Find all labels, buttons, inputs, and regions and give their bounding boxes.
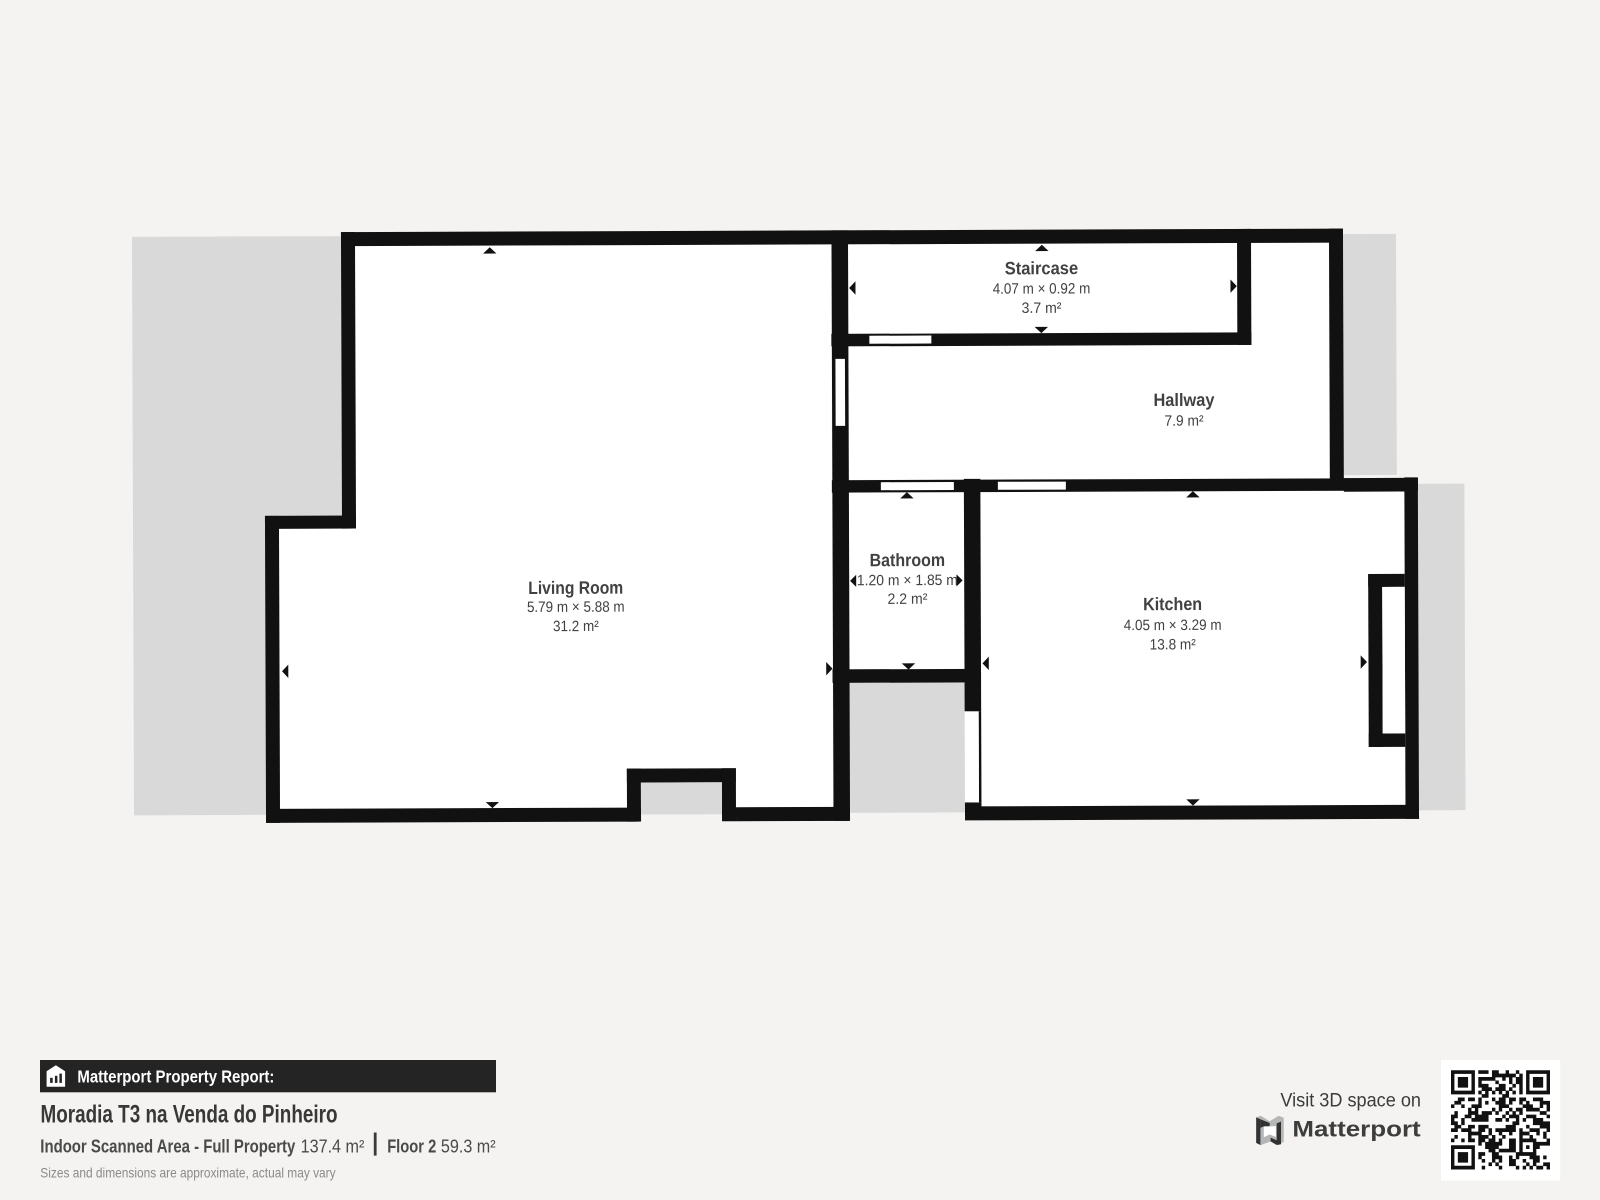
svg-text:Bathroom: Bathroom	[870, 550, 946, 570]
svg-text:2.2 m²: 2.2 m²	[887, 591, 927, 608]
svg-text:Living Room: Living Room	[528, 578, 623, 598]
svg-text:Staircase: Staircase	[1005, 258, 1078, 278]
svg-text:7.9 m²: 7.9 m²	[1165, 413, 1204, 430]
svg-text:Kitchen: Kitchen	[1143, 594, 1202, 614]
svg-text:4.07 m × 0.92 m: 4.07 m × 0.92 m	[993, 280, 1091, 297]
svg-text:Sizes and dimensions are appro: Sizes and dimensions are approximate, ac…	[40, 1165, 335, 1181]
svg-text:Matterport Property Report:: Matterport Property Report:	[77, 1067, 274, 1087]
svg-text:Matterport: Matterport	[1292, 1117, 1420, 1142]
svg-text:Hallway: Hallway	[1153, 390, 1214, 410]
svg-text:59.3 m²: 59.3 m²	[441, 1137, 496, 1157]
svg-text:Moradia T3 na Venda do Pinheir: Moradia T3 na Venda do Pinheiro	[41, 1100, 338, 1128]
svg-text:13.8 m²: 13.8 m²	[1150, 636, 1196, 653]
svg-text:Floor 2: Floor 2	[387, 1137, 436, 1157]
svg-text:Indoor Scanned Area - Full Pro: Indoor Scanned Area - Full Property	[40, 1137, 295, 1157]
svg-text:5.79 m × 5.88 m: 5.79 m × 5.88 m	[527, 599, 625, 616]
svg-text:31.2 m²: 31.2 m²	[553, 618, 599, 635]
svg-text:1.20 m × 1.85 m: 1.20 m × 1.85 m	[857, 572, 958, 589]
svg-text:Visit 3D space on: Visit 3D space on	[1280, 1091, 1421, 1112]
svg-text:3.7 m²: 3.7 m²	[1022, 300, 1062, 317]
svg-text:4.05 m × 3.29 m: 4.05 m × 3.29 m	[1124, 617, 1222, 634]
svg-text:137.4 m²: 137.4 m²	[301, 1137, 365, 1157]
